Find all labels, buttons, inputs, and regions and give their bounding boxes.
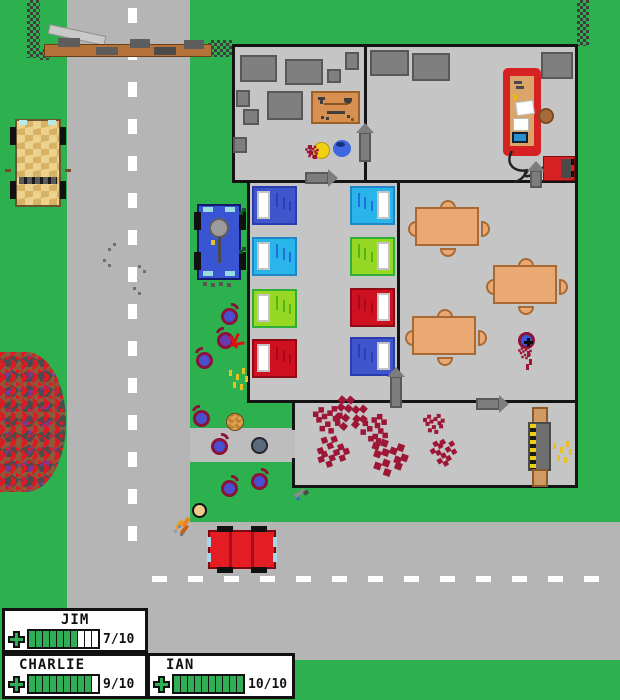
health-cell: [50, 631, 56, 647]
blood-splatter: [375, 423, 381, 429]
player-name: IAN: [166, 658, 292, 673]
health-cell: [43, 676, 49, 692]
stool: [538, 108, 554, 124]
wall: [232, 44, 578, 47]
bed-sheet-line: [371, 201, 373, 211]
spark-debris: [229, 370, 232, 376]
lane-dash: [128, 119, 137, 134]
chair: [486, 279, 495, 295]
chainlink-fence-left: [27, 0, 40, 58]
zombie-blue[interactable]: [211, 438, 228, 455]
hazard-machine[interactable]: [528, 407, 553, 487]
lane-dash: [128, 230, 137, 245]
car-red[interactable]: [205, 526, 279, 573]
health-plus-icon: [8, 676, 25, 693]
health-cell: [92, 631, 98, 647]
bed-sheet-line: [371, 252, 373, 262]
hud-panel-ian: IAN 10/10: [147, 653, 295, 699]
paper: [515, 100, 535, 116]
bed-sheet-line: [283, 248, 285, 260]
player-name: CHARLIE: [19, 658, 145, 673]
barricade-lump: [130, 39, 150, 48]
wall: [247, 180, 250, 403]
door-arrow-up[interactable]: [390, 376, 402, 408]
health-cell: [78, 676, 84, 692]
smoke-puffs: [178, 525, 181, 528]
survivor-blue[interactable]: [333, 140, 351, 157]
lane-dash: [548, 576, 563, 582]
lane-dash: [128, 378, 137, 393]
hazard-stripe: [530, 424, 536, 469]
car-blue[interactable]: [195, 200, 245, 286]
dining-table: [412, 316, 476, 355]
wrench-icon: [327, 111, 345, 114]
bed-sheet-line: [289, 201, 291, 211]
bed-pillow: [377, 191, 390, 219]
dining-table: [415, 207, 479, 246]
health-cell: [195, 676, 201, 692]
health-cell: [202, 676, 208, 692]
footprint: [113, 243, 116, 246]
bed-sheet-line: [289, 354, 291, 364]
bed[interactable]: [350, 186, 395, 225]
lane-dash: [128, 193, 137, 208]
zombie-arm: [252, 465, 271, 484]
crate: [345, 52, 359, 70]
bed[interactable]: [350, 288, 395, 327]
bed-sheet-line: [364, 248, 366, 260]
bed-pillow: [257, 191, 270, 219]
zombie-purple[interactable]: [217, 332, 234, 349]
wall: [292, 458, 295, 488]
bed[interactable]: [252, 289, 297, 328]
bed-sheet-line: [358, 295, 360, 309]
health-cell: [57, 631, 63, 647]
windshield: [225, 207, 235, 212]
footprint: [138, 292, 141, 295]
health-plus-icon: [8, 631, 25, 648]
wheel: [194, 252, 201, 270]
zombie-blue[interactable]: [251, 473, 268, 490]
generator-stub: [571, 171, 574, 177]
mirror: [5, 169, 11, 172]
zombie-arm: [189, 402, 208, 421]
footprint: [133, 287, 136, 290]
wheel: [239, 252, 246, 270]
bed-sheet-line: [276, 296, 278, 310]
health-cell: [216, 676, 222, 692]
zombie-blue[interactable]: [221, 480, 238, 497]
bed-pillow: [257, 294, 270, 322]
lane-dash: [128, 156, 137, 171]
health-cell: [57, 676, 63, 692]
bed-sheet-line: [289, 252, 291, 262]
blood-splatter: [309, 149, 312, 152]
bed[interactable]: [252, 186, 297, 225]
truck-body: [15, 119, 61, 207]
windshield: [203, 207, 213, 212]
device-blue: [512, 132, 528, 143]
truck-grille: [19, 177, 57, 184]
bed-pillow: [377, 342, 390, 370]
crate: [327, 69, 341, 83]
footprint: [103, 259, 106, 262]
chainlink-fence-right: [577, 0, 589, 46]
health-cell: [237, 676, 243, 692]
zombie-gray[interactable]: [251, 437, 268, 454]
wheel: [251, 526, 267, 532]
workbench[interactable]: [311, 91, 360, 124]
bed-pillow: [377, 293, 390, 321]
door-arrow-right[interactable]: [476, 398, 500, 410]
car-stripe: [229, 531, 232, 568]
lane-dash: [440, 576, 455, 582]
blood-trail: [527, 351, 530, 357]
paper: [513, 118, 529, 131]
lane-dash: [224, 576, 239, 582]
grass-sprig: [239, 211, 243, 215]
windshield: [207, 537, 211, 547]
barricade-lump: [154, 47, 176, 55]
zombie-blue[interactable]: [221, 308, 238, 325]
lane-dash: [128, 304, 137, 319]
health-bar: [172, 674, 245, 694]
health-cell: [36, 676, 42, 692]
footprint: [108, 264, 111, 267]
bed-pillow: [257, 344, 270, 372]
lane-dash: [128, 415, 137, 430]
hair: [336, 142, 345, 147]
windshield: [273, 537, 277, 547]
chair: [437, 309, 453, 318]
blood-splatter: [322, 414, 328, 420]
bed-sheet-line: [276, 244, 278, 258]
health-cell: [64, 631, 70, 647]
windshield: [207, 553, 211, 562]
lane-dash: [128, 489, 137, 504]
generator-stub: [571, 159, 574, 165]
health-cell: [78, 631, 84, 647]
health-cell: [50, 676, 56, 692]
hammer-icon: [320, 97, 323, 104]
lane-dash: [128, 8, 137, 23]
bed-sheet-line: [371, 352, 373, 362]
zombie-blue[interactable]: [193, 410, 210, 427]
wood-barricade[interactable]: [44, 30, 212, 58]
wheel: [60, 181, 66, 199]
crate: [243, 109, 259, 125]
survivor-shooter[interactable]: [192, 503, 207, 518]
wheel: [217, 526, 233, 532]
windshield: [48, 120, 56, 125]
zombie-blue[interactable]: [196, 352, 213, 369]
zombie-arm: [192, 344, 211, 363]
health-cell: [209, 676, 215, 692]
lane-dash: [476, 576, 491, 582]
zombie-arm: [222, 472, 241, 491]
door-arrow-right[interactable]: [305, 172, 329, 184]
berry-bush: [0, 352, 66, 492]
tool-handle: [324, 103, 348, 105]
wheel: [10, 181, 16, 199]
blood-splatter: [430, 420, 434, 424]
health-cell: [85, 676, 91, 692]
bed-sheet-line: [364, 348, 366, 360]
barricade-lump: [58, 38, 80, 47]
lane-dash: [368, 576, 383, 582]
gun-grip: [303, 490, 309, 496]
lamp: [211, 240, 215, 245]
wheel: [10, 127, 16, 145]
blood-splatter: [522, 350, 525, 353]
footprint: [138, 265, 141, 268]
health-bar: [27, 674, 100, 694]
player-name: JIM: [61, 613, 145, 628]
bed[interactable]: [350, 237, 395, 276]
bed[interactable]: [252, 237, 297, 276]
wall: [232, 44, 235, 183]
health-cell: [71, 631, 77, 647]
crate: [285, 59, 323, 85]
health-cell: [85, 631, 91, 647]
health-plus-icon: [153, 676, 170, 693]
chair: [405, 330, 414, 346]
wall: [575, 44, 578, 488]
bed[interactable]: [252, 339, 297, 378]
barricade-lump: [184, 40, 204, 49]
barricade-lump: [96, 47, 118, 55]
lane-dash: [296, 576, 311, 582]
lane-dash: [128, 526, 137, 541]
health-cell: [43, 631, 49, 647]
health-cell: [230, 676, 236, 692]
lane-dash: [332, 576, 347, 582]
door-arrow-up[interactable]: [359, 132, 371, 162]
chair: [518, 258, 534, 267]
windshield: [225, 271, 235, 276]
bed-sheet-line: [276, 193, 278, 207]
footprint: [108, 248, 111, 251]
door-arrow-up[interactable]: [530, 170, 542, 188]
crate: [267, 91, 303, 120]
crate: [412, 53, 450, 81]
health-cell: [188, 676, 194, 692]
bed-sheet-line: [364, 299, 366, 311]
bed-sheet-line: [358, 244, 360, 258]
lane-dash: [152, 576, 167, 582]
rifle-barrel: [218, 237, 221, 263]
health-text: 7/10: [103, 632, 134, 647]
lane-dash: [584, 576, 599, 582]
grass-sprig: [239, 250, 243, 254]
windshield: [203, 271, 213, 276]
bed-sheet-line: [358, 344, 360, 358]
health-cell: [71, 676, 77, 692]
bed-sheet-line: [371, 303, 373, 313]
health-cell: [92, 676, 98, 692]
zombie-cross[interactable]: [518, 332, 535, 349]
generator-red[interactable]: [543, 156, 575, 181]
car-stripe: [251, 531, 254, 568]
gun-clip: [296, 497, 300, 501]
tool-marks: [514, 81, 522, 84]
generator-motor: [561, 159, 571, 178]
wheel: [194, 212, 201, 230]
health-text: 10/10: [248, 677, 287, 692]
health-cell: [174, 676, 180, 692]
hud-panel-jim: JIM 7/10: [2, 608, 148, 653]
health-cell: [29, 631, 35, 647]
health-cell: [181, 676, 187, 692]
survivor-head[interactable]: [226, 413, 244, 431]
footprint: [143, 270, 146, 273]
health-cell: [36, 631, 42, 647]
wall: [364, 44, 367, 183]
dining-table: [493, 265, 557, 304]
lane-dash: [512, 576, 527, 582]
health-cell: [29, 676, 35, 692]
lane-dash: [128, 82, 137, 97]
windshield: [19, 120, 27, 125]
crate: [541, 52, 573, 79]
bed-sheet-line: [276, 346, 278, 360]
health-text: 9/10: [103, 677, 134, 692]
windshield: [273, 553, 277, 562]
bed-sheet-line: [283, 197, 285, 209]
truck-tan[interactable]: [12, 117, 64, 210]
chair: [408, 221, 417, 237]
spark-debris: [553, 443, 556, 449]
bed-sheet-line: [358, 193, 360, 207]
chair: [440, 200, 456, 209]
lane-dash: [404, 576, 419, 582]
lane-dash: [128, 267, 137, 282]
wheel: [217, 567, 233, 573]
lane-dash: [188, 576, 203, 582]
spare-tire: [209, 218, 229, 238]
bed-sheet-line: [283, 350, 285, 362]
wheel: [251, 567, 267, 573]
health-cell: [223, 676, 229, 692]
crate: [233, 137, 247, 153]
crosshair-icon: [527, 338, 530, 347]
bed-sheet-line: [289, 304, 291, 314]
crate: [236, 90, 250, 107]
bed-pillow: [257, 242, 270, 270]
lane-dash: [128, 341, 137, 356]
survivor-yellow[interactable]: [313, 142, 330, 159]
car-body: [208, 530, 276, 569]
lane-dash: [128, 452, 137, 467]
spark-icon: [513, 94, 517, 100]
health-cell: [64, 676, 70, 692]
bed-sheet-line: [364, 197, 366, 209]
game-viewport: JIM 7/10 CHARLIE 9/10 IAN 10/10: [0, 0, 620, 700]
machine-end: [532, 469, 548, 487]
zombie-arm: [213, 324, 232, 343]
bed-sheet-line: [283, 300, 285, 312]
exhaust: [203, 282, 207, 286]
health-bar: [27, 629, 100, 649]
wheel: [60, 127, 66, 145]
tool-bits: [321, 116, 324, 119]
zombie-arm: [222, 300, 241, 319]
bed-pillow: [377, 242, 390, 270]
lane-dash: [260, 576, 275, 582]
crate: [240, 55, 277, 82]
wall: [292, 403, 295, 430]
crate: [370, 50, 409, 76]
road-horizontal: [67, 522, 620, 660]
hud-panel-charlie: CHARLIE 9/10: [2, 653, 148, 699]
mirror: [65, 169, 71, 172]
wall: [247, 400, 578, 403]
driveway-path: [190, 428, 295, 462]
